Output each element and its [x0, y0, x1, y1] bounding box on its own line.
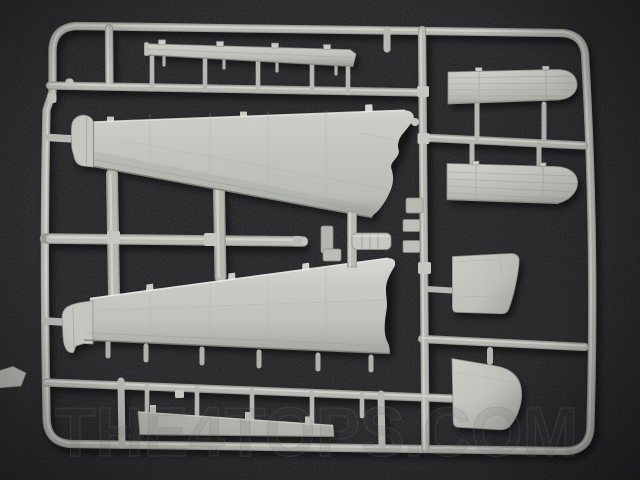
svg-text:THE4TOPS.COM: THE4TOPS.COM: [55, 393, 578, 471]
